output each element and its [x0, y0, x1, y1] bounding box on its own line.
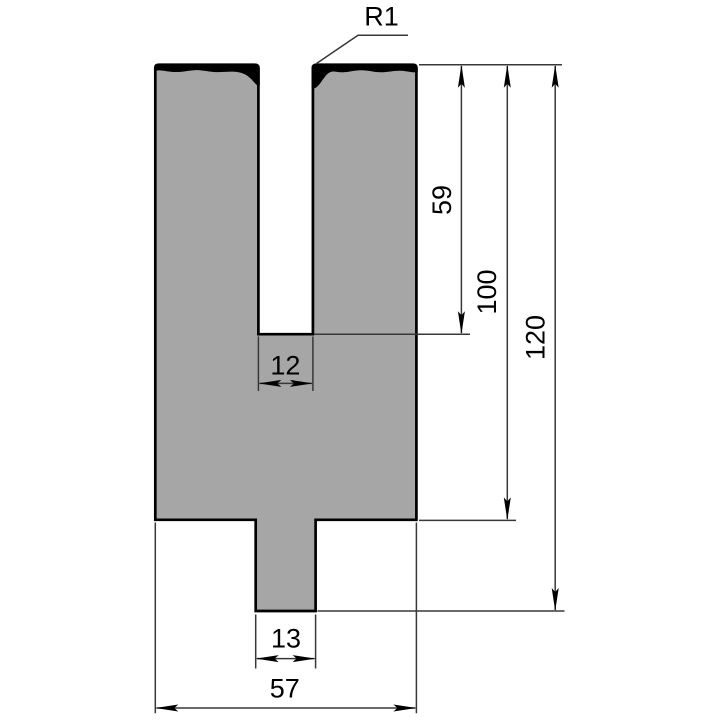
svg-text:12: 12: [270, 351, 300, 381]
svg-text:57: 57: [270, 674, 300, 704]
svg-text:13: 13: [271, 623, 301, 653]
svg-text:59: 59: [427, 185, 457, 215]
svg-text:120: 120: [520, 315, 550, 360]
svg-text:R1: R1: [364, 1, 399, 31]
svg-text:100: 100: [472, 269, 502, 314]
